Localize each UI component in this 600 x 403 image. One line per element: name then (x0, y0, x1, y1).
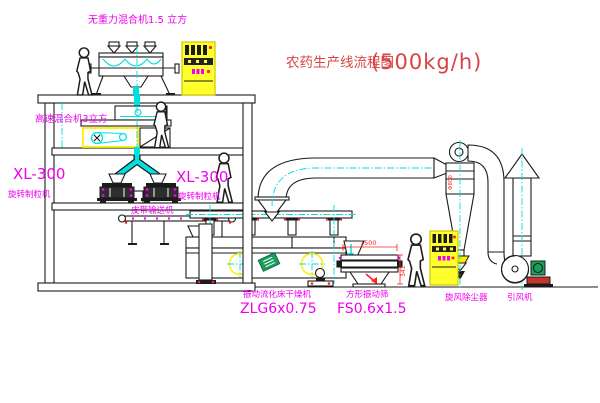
label-belt-conveyor: 皮带输送机 (131, 205, 174, 216)
diagram-svg: Φ800 1500 (0, 0, 600, 403)
granulator-unit-right (141, 174, 181, 203)
building-floor2-slab (52, 148, 243, 155)
foot-dot (198, 281, 201, 284)
label-granulator-right-name: 旋转制粒机 (178, 191, 221, 202)
diagram-title-capacity: (500kg/h) (371, 50, 482, 74)
label-granulator-left-model: XL-300 (13, 165, 65, 183)
building-base-slab (38, 283, 255, 291)
label-cyclone: 旋风除尘器 (445, 292, 488, 303)
discharge-chute (199, 224, 212, 280)
label-dryer-name: 振动流化床干燥机 (243, 289, 312, 300)
granulator-unit-left (97, 174, 137, 203)
label-sieve-name: 方形振动筛 (346, 289, 389, 300)
cyclone-inlet-wedge (434, 158, 447, 178)
person-roof (77, 48, 92, 95)
label-sieve-model: FS0.6x1.5 (337, 301, 407, 317)
building-right-column (243, 103, 252, 283)
fan-base (527, 277, 550, 284)
label-gravity-mixer: 无重力混合机1.5 立方 (88, 13, 187, 26)
label-dryer-model: ZLG6x0.75 (240, 301, 317, 317)
building-roof-slab (38, 95, 255, 103)
control-cabinet-right (430, 231, 458, 285)
y-feed-pipe (117, 155, 158, 176)
label-highspeed-mixer: 高速混合机3立方 (35, 113, 108, 125)
cabinet-logo (192, 69, 195, 74)
control-cabinet-top (182, 42, 215, 95)
indicator-dot (452, 257, 455, 260)
flow-diagram-canvas: Φ800 1500 (0, 0, 600, 403)
induced-fan (502, 256, 554, 288)
label-granulator-right-model: XL-300 (176, 168, 228, 186)
mixer-discharge-pipe (133, 87, 139, 95)
indicator-dot (453, 236, 456, 239)
gravity-mixer (87, 42, 179, 96)
label-granulator-left-name: 旋转制粒机 (8, 189, 51, 200)
cabinet-logo (438, 256, 441, 261)
sieve-width-dim: 1500 (360, 239, 377, 247)
indicator-dot (207, 70, 210, 73)
foot-dot (212, 281, 215, 284)
cyclone-dimension: Φ800 (448, 175, 454, 190)
label-fan: 引风机 (507, 292, 533, 303)
person-ground (408, 234, 425, 286)
indicator-dot (209, 46, 212, 49)
sieve-height-dim: 341 (400, 265, 407, 277)
